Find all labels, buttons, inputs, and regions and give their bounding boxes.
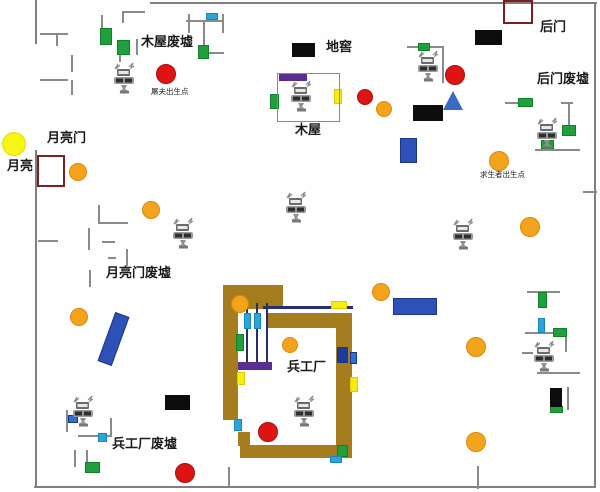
green-crate [538, 292, 547, 308]
ruin-wall [565, 337, 567, 352]
mech-icon [413, 50, 443, 88]
orange-spot [70, 308, 88, 326]
ruin-wall [208, 52, 224, 54]
label-binggongchang: 兵工厂 [287, 361, 326, 376]
red-spot [445, 65, 465, 85]
yellow-marker [331, 301, 347, 309]
orange-spot [69, 163, 87, 181]
arsenal-rail [246, 303, 248, 363]
arsenal-wall-top-right [268, 313, 352, 328]
ruin-wall [228, 467, 230, 487]
map-border-left-lower [35, 150, 37, 487]
orange-spot [466, 337, 486, 357]
black-block [550, 388, 562, 407]
ruin-wall [505, 102, 519, 104]
moon [2, 132, 26, 156]
blue-triangle [443, 91, 463, 110]
black-block [475, 30, 502, 45]
ruin-wall [203, 20, 205, 47]
green-crate [85, 462, 100, 473]
ruin-wall [88, 228, 90, 250]
label-houmen-feixu: 后门废墟 [537, 73, 589, 88]
cyan-marker [98, 433, 107, 442]
map-border-right [594, 2, 596, 488]
ruin-wall [188, 14, 190, 33]
yellow-marker [350, 377, 358, 392]
yellow-marker [237, 372, 245, 385]
mech-icon [289, 395, 319, 433]
mech-icon [532, 117, 562, 155]
blue-crate-tilted [98, 312, 130, 366]
cyan-marker [234, 419, 242, 431]
mech-icon [448, 218, 478, 256]
ruin-wall [136, 39, 138, 55]
ruin-wall [110, 418, 112, 437]
ruin-wall [122, 11, 124, 23]
navy-marker [337, 347, 348, 363]
ruin-wall [71, 80, 73, 95]
label-qiushengzhe-spawn: 求生者出生点 [480, 171, 525, 180]
cyan-marker [538, 318, 545, 333]
ruin-wall [71, 55, 73, 72]
cyan-marker [206, 13, 218, 20]
cyan-marker [244, 313, 251, 329]
orange-spot [142, 201, 160, 219]
label-muwu: 木屋 [295, 124, 321, 139]
red-spot [357, 89, 373, 105]
ruin-wall [561, 102, 573, 104]
mech-icon [168, 217, 198, 255]
ruin-wall [567, 387, 569, 410]
ruin-wall [126, 249, 128, 266]
blue-marker [350, 352, 357, 364]
orange-spot [376, 101, 392, 117]
red-spot [156, 64, 176, 84]
mech-icon [281, 191, 311, 229]
orange-spot [520, 217, 540, 237]
mech-icon [68, 395, 98, 433]
ruin-wall [40, 79, 68, 81]
ruin-wall [89, 270, 91, 287]
arsenal-rail [266, 303, 268, 363]
game-map: 木屋废墟地窖后门后门废墟屠夫出生点木屋月亮门月亮求生者出生点月亮门废墟兵工厂兵工… [0, 0, 600, 492]
orange-spot [489, 151, 509, 171]
orange-spot [231, 295, 249, 313]
orange-spot [466, 432, 486, 452]
green-crate [198, 45, 209, 59]
green-crate [553, 328, 567, 337]
blue-crate [393, 298, 437, 315]
green-crate [518, 98, 533, 107]
green-crate [117, 40, 130, 55]
green-crate [100, 28, 112, 45]
green-crate [562, 125, 576, 136]
red-spot [258, 422, 278, 442]
green-crate [236, 334, 244, 351]
black-block [165, 395, 190, 410]
label-tufu-spawn: 屠夫出生点 [151, 88, 189, 97]
arsenal-rail [256, 303, 258, 363]
ruin-wall [102, 241, 115, 243]
label-dijiao: 地窖 [326, 41, 352, 56]
ruin-wall [477, 466, 479, 489]
ruin-wall [56, 33, 58, 46]
ruin-wall [568, 102, 570, 125]
ruin-wall [119, 55, 121, 62]
ruin-wall [101, 15, 103, 29]
ruin-wall [186, 20, 224, 22]
label-yueliang: 月亮 [7, 160, 33, 175]
label-yueliangmen: 月亮门 [47, 132, 86, 147]
label-muwu-feixu: 木屋废墟 [141, 36, 193, 51]
blue-crate [400, 138, 417, 163]
map-border-left-upper [35, 0, 37, 44]
moongate-outline [37, 155, 65, 187]
orange-spot [372, 283, 390, 301]
mech-icon [529, 340, 559, 378]
ruin-wall [40, 33, 68, 35]
backdoor-gate-outline [503, 0, 533, 24]
black-block [413, 105, 443, 121]
map-border-bottom [34, 486, 596, 488]
red-spot [175, 463, 195, 483]
ruin-wall [122, 11, 145, 13]
mech-icon [109, 62, 139, 100]
ruin-wall [74, 450, 76, 467]
ruin-wall [86, 450, 88, 462]
arsenal-wall-left [223, 309, 238, 420]
ruin-wall [108, 257, 116, 259]
ruin-wall [222, 14, 224, 33]
label-binggongchang-feixu: 兵工厂废墟 [112, 438, 177, 453]
ruin-wall [583, 191, 597, 193]
label-yueliangmen-feixu: 月亮门废墟 [106, 267, 171, 282]
arsenal-wall-step [238, 432, 250, 446]
orange-spot [282, 337, 298, 353]
black-block [292, 43, 315, 57]
cyan-marker [254, 313, 261, 329]
ruin-wall [98, 222, 128, 224]
mech-icon [286, 80, 316, 118]
cyan-marker [330, 456, 342, 463]
label-houmen: 后门 [540, 21, 566, 36]
ruin-wall [38, 240, 58, 242]
purple-beam [238, 362, 272, 370]
green-crate [550, 406, 563, 413]
